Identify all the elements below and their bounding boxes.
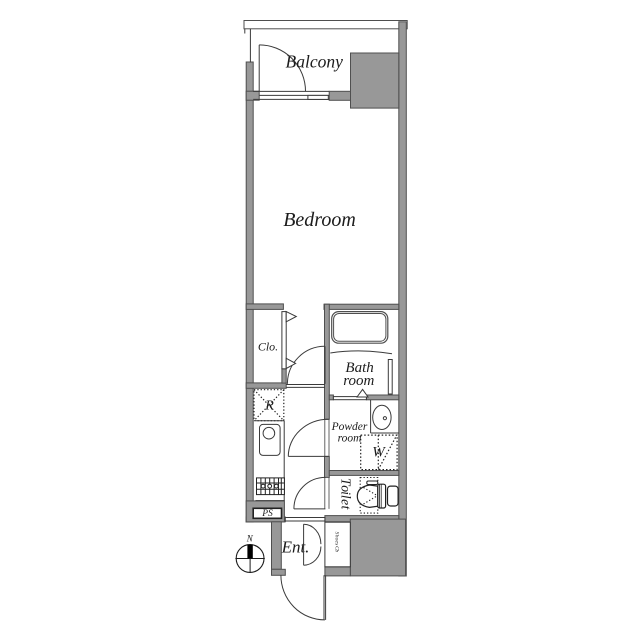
svg-text:b: b (333, 549, 339, 552)
svg-text:s: s (333, 543, 339, 545)
svg-text:room: room (343, 373, 374, 389)
svg-text:e: e (338, 499, 353, 505)
svg-text:Clo.: Clo. (258, 340, 278, 354)
svg-text:Ent.: Ent. (281, 538, 310, 557)
svg-text:W: W (372, 445, 386, 461)
svg-text:Powder: Powder (331, 421, 368, 433)
svg-text:room: room (338, 433, 362, 445)
svg-text:t: t (338, 506, 353, 511)
svg-text:Balcony: Balcony (286, 51, 344, 71)
svg-text:PS: PS (261, 509, 273, 519)
svg-text:R: R (264, 399, 274, 414)
svg-text:N: N (246, 534, 254, 544)
svg-text:Bedroom: Bedroom (283, 209, 356, 231)
